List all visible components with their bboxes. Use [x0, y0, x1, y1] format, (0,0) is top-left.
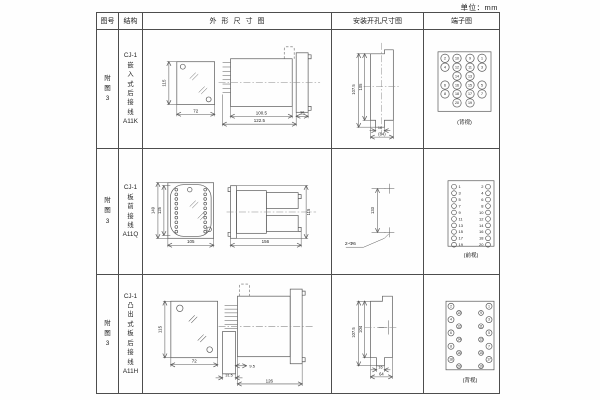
terminal-number: 9	[469, 57, 471, 61]
header-terminal-diagram: 端子图	[424, 13, 499, 30]
screw-dot	[175, 226, 178, 229]
screw-dot	[204, 230, 207, 233]
screw-dot	[175, 198, 178, 201]
terminal-circle	[452, 210, 457, 215]
dim-label: 125	[157, 206, 162, 214]
terminal-number: 3	[481, 65, 483, 69]
terminal-number: 20	[455, 101, 459, 105]
front-view: 115 72	[161, 62, 214, 117]
dim-label: 16	[378, 365, 382, 369]
terminal-number: 18	[455, 92, 459, 96]
structure-a11q: CJ-1 板 前 接 线 A11Q	[119, 149, 143, 275]
terminal-circle	[452, 236, 457, 241]
view-caption: (前视)	[464, 251, 479, 259]
outline-cell-a11h: 115 72 31.5 9.5	[143, 275, 332, 393]
dim-label: 107.5	[351, 84, 356, 95]
structure-a11h: CJ-1 凸 出 式 板 后 接 线 A11H	[119, 275, 143, 393]
screw-dot	[175, 188, 178, 191]
screw-dot	[204, 193, 207, 196]
terminal-number: 2	[444, 57, 446, 61]
terminal-number: 15	[479, 351, 483, 355]
dim-label: 126	[266, 378, 274, 383]
header-structure: 结构	[119, 13, 143, 30]
dim-label: 133	[370, 206, 375, 214]
terminal-number: 7	[481, 92, 483, 96]
screw-dot	[175, 193, 178, 196]
terminal-number: 13	[468, 74, 472, 78]
terminal-number: 14	[479, 223, 484, 228]
screw-dot	[204, 216, 207, 219]
terminal-number: 8	[481, 203, 484, 208]
install-cell-a11q: 133 2-Φ6	[332, 149, 424, 275]
terminal-number: 19	[459, 242, 464, 247]
terminal-number: 15	[468, 83, 472, 87]
terminal-circle	[486, 223, 491, 228]
terminal-number: 4	[444, 65, 446, 69]
terminal-number: 13	[459, 223, 464, 228]
terminal-number: 8	[450, 344, 452, 348]
header-install-dims: 安装开孔尺寸图	[332, 13, 424, 30]
terminal-number: 5	[481, 83, 483, 87]
dim-label: 64	[379, 371, 384, 376]
terminal-circle	[452, 184, 457, 189]
terminal-number: 17	[487, 358, 491, 362]
screw-dot	[204, 198, 207, 201]
terminal-circle	[486, 236, 491, 241]
dim-label: 122.5	[254, 118, 266, 123]
screw-dot	[204, 207, 207, 210]
front-view: 115 72	[157, 301, 217, 367]
header-outline-dims: 外形尺寸图	[143, 13, 332, 30]
terminal-circle	[486, 197, 491, 202]
manual-page: 单位：mm 图号 结构 外形尺寸图 安装开孔尺寸图 端子图 附 图 3 CJ-1…	[0, 0, 600, 400]
terminal-circle	[452, 229, 457, 234]
figure-no-a11h: 附 图 3	[97, 275, 119, 393]
terminal-cell-a11q: (前视) 1357911131517192468101214161820	[424, 149, 499, 275]
terminal-cell-a11k: (背视) 2109141211314136161558181772019	[424, 30, 499, 149]
dim-label: 100.5	[256, 110, 268, 115]
terminal-number: 9	[459, 210, 462, 215]
terminal-number: 10	[457, 311, 461, 315]
terminal-circle	[486, 229, 491, 234]
side-view: 31.5 9.5 126	[216, 284, 314, 386]
terminal-number: 2	[450, 304, 452, 308]
terminal-number: 8	[444, 92, 446, 96]
screw-dot	[175, 207, 178, 210]
terminal-number: 6	[450, 331, 452, 335]
terminal-number: 12	[457, 324, 461, 328]
terminal-number: 6	[481, 197, 484, 202]
terminal-number: 16	[457, 351, 461, 355]
dim-label: 105	[187, 239, 195, 244]
terminal-number: 2	[481, 184, 483, 189]
screw-dot	[175, 216, 178, 219]
terminal-diagram-a11q: (前视) 1357911131517192468101214161820	[424, 149, 499, 274]
dim-label: 72	[193, 108, 198, 113]
terminal-number: 14	[455, 74, 459, 78]
dim-label: 31.5	[225, 373, 232, 377]
terminal-circle	[452, 217, 457, 222]
terminal-number: 7	[459, 203, 461, 208]
terminal-number: 17	[468, 92, 472, 96]
terminal-number: 3	[459, 191, 462, 196]
terminal-number: 10	[479, 210, 484, 215]
terminal-circle	[486, 217, 491, 222]
terminal-number: 3	[488, 318, 490, 322]
dim-label: 9.5	[249, 363, 255, 368]
outline-cell-a11q: 149 125 105 156	[143, 149, 332, 275]
side-view: 100.5 35 122.5	[219, 47, 320, 126]
dim-label: 115	[161, 79, 166, 87]
terminal-circle	[486, 204, 491, 209]
dim-label: 16	[378, 126, 382, 130]
terminal-number: 4	[481, 191, 484, 196]
dim-label: 104	[358, 325, 363, 333]
figure-no-a11q: 附 图 3	[97, 149, 119, 275]
terminal-number: 12	[455, 65, 459, 69]
structure-a11k: CJ-1 嵌 入 式 后 接 线 A11K	[119, 30, 143, 149]
terminal-number: 7	[488, 344, 490, 348]
terminal-circle	[486, 210, 491, 215]
terminal-number: 19	[468, 101, 472, 105]
terminal-number: 16	[455, 83, 459, 87]
screw-dot	[204, 202, 207, 205]
terminal-number: 4	[450, 318, 452, 322]
terminal-number: 11	[468, 65, 472, 69]
terminal-diagram-a11h: (背视) 2104126148161820193115137151719	[424, 275, 499, 393]
terminal-number: 16	[479, 229, 484, 234]
terminal-number: 6	[444, 83, 446, 87]
terminal-number: 10	[455, 57, 459, 61]
view-caption: (背视)	[463, 376, 478, 384]
dim-label: 107.5	[351, 327, 356, 338]
screw-dot	[175, 212, 178, 215]
screw-dot	[204, 226, 207, 229]
outline-drawing-a11h: 115 72 31.5 9.5	[143, 275, 331, 393]
dim-label: 156	[262, 239, 270, 244]
figure-no-a11k: 附 图 3	[97, 30, 119, 149]
terminal-number: 1	[488, 304, 490, 308]
terminal-number: 18	[479, 236, 484, 241]
dim-label: (64)	[378, 132, 386, 137]
dim-label: 72	[192, 359, 197, 364]
outline-drawing-a11k: 115 72 100.5 35 122.5	[143, 30, 331, 148]
terminal-number: 1	[481, 57, 483, 61]
screw-dot	[175, 221, 178, 224]
install-drawing-a11q: 133 2-Φ6	[332, 149, 423, 274]
screw-dot	[204, 188, 207, 191]
terminal-circle	[486, 191, 491, 196]
holes-label: 2-Φ6	[345, 241, 356, 247]
dim-label: 35	[300, 110, 305, 115]
terminal-cell-a11h: (背视) 2104126148161820193115137151719	[424, 275, 499, 393]
terminal-number: 5	[459, 197, 462, 202]
dim-label: 115	[306, 208, 311, 215]
terminal-number: 11	[479, 324, 483, 328]
terminal-circle	[452, 197, 457, 202]
terminal-number: 19	[479, 364, 483, 368]
dim-label: 115	[157, 325, 162, 333]
outline-drawing-a11q: 149 125 105 156	[143, 149, 331, 274]
screw-dot	[175, 230, 178, 233]
terminal-circle	[452, 204, 457, 209]
terminal-number: 11	[459, 216, 464, 221]
terminal-number: 15	[459, 229, 464, 234]
install-drawing-a11k: 107.5 105 16 (64)	[332, 30, 423, 148]
terminal-number: 12	[479, 216, 483, 221]
terminal-number: 1	[459, 184, 462, 189]
screw-dot	[175, 202, 178, 205]
front-view: 149 125 105	[150, 183, 213, 247]
terminal-diagram-a11k: (背视) 2109141211314136161558181772019	[424, 30, 499, 148]
outline-cell-a11k: 115 72 100.5 35 122.5	[143, 30, 332, 149]
terminal-circle	[452, 223, 457, 228]
terminal-number: 13	[479, 338, 483, 342]
terminal-circle	[452, 191, 457, 196]
terminal-number: 20	[457, 364, 461, 368]
header-figure-no: 图号	[97, 13, 119, 30]
install-drawing-a11h: 107.5 104 16 64	[332, 275, 423, 393]
install-cell-a11h: 107.5 104 16 64	[332, 275, 424, 393]
install-cell-a11k: 107.5 105 16 (64)	[332, 30, 424, 149]
dim-label: 105	[358, 83, 363, 91]
screw-dot	[204, 212, 207, 215]
side-view: 156 115	[227, 186, 317, 248]
terminal-number: 9	[480, 311, 482, 315]
terminal-circle	[486, 184, 491, 189]
terminal-number: 5	[488, 331, 490, 335]
dim-label: 149	[150, 206, 155, 214]
view-caption: (背视)	[457, 118, 472, 126]
screw-dot	[204, 221, 207, 224]
dimension-table: 图号 结构 外形尺寸图 安装开孔尺寸图 端子图 附 图 3 CJ-1 嵌 入 式…	[96, 12, 500, 394]
terminal-number: 14	[457, 338, 461, 342]
terminal-number: 18	[449, 358, 453, 362]
terminal-number: 17	[459, 236, 463, 241]
